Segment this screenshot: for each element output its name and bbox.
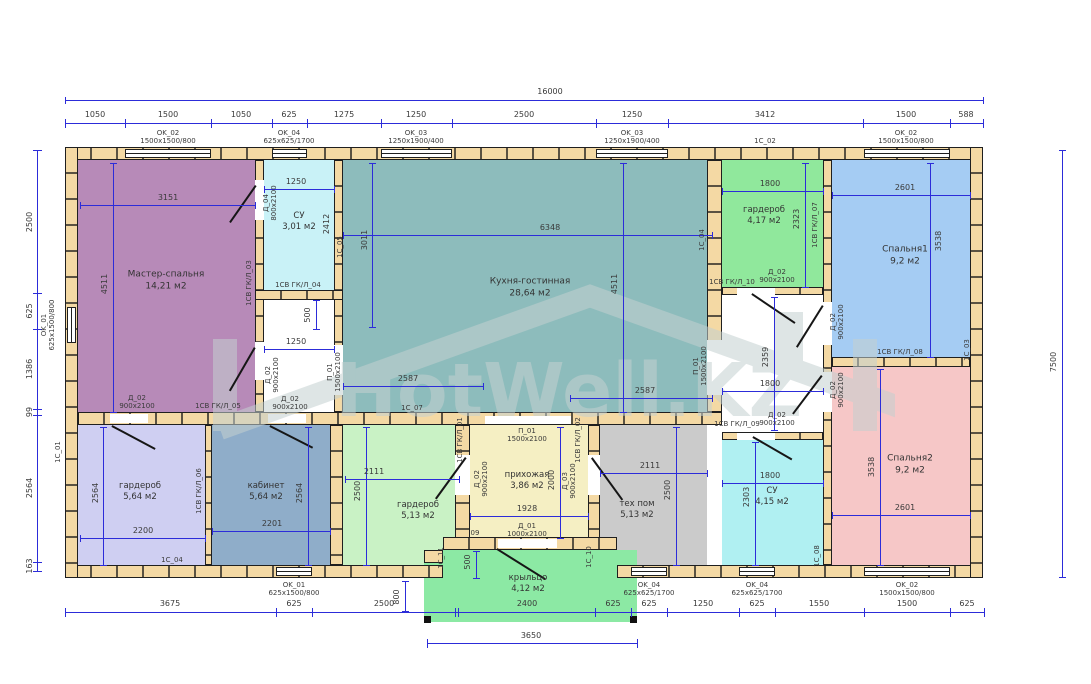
dimension-tick: [722, 480, 723, 487]
dimension-tick: [313, 300, 320, 301]
annotation-label: 1500: [896, 110, 916, 120]
dimension-tick: [595, 608, 596, 617]
dimension-tick: [823, 388, 824, 395]
dimension-chain: [65, 612, 984, 613]
dimension-tick: [863, 119, 864, 128]
dimension-tick: [927, 163, 934, 164]
dimension-tick: [100, 565, 107, 566]
annotation-label: 1500x2100: [700, 346, 708, 386]
annotation-label: 1С_03: [963, 339, 971, 361]
annotation-label: 1050: [85, 110, 105, 120]
dimension-tick: [402, 581, 409, 582]
dimension-tick: [313, 329, 320, 330]
annotation-label: 625: [25, 303, 35, 318]
dimension-line: [366, 427, 367, 565]
dimension-tick: [264, 346, 265, 353]
annotation-label: 1386: [25, 359, 35, 379]
annotation-label: 1СВ ГК/Л_09: [714, 420, 760, 428]
room-label: Кухня-гостинная 28,64 м2: [490, 276, 571, 299]
dimension-tick: [65, 97, 66, 104]
annotation-label: 625x625/1700: [731, 589, 782, 597]
dimension-line: [805, 163, 806, 287]
dimension-tick: [877, 369, 884, 370]
dimension-tick: [363, 565, 370, 566]
door-opening: [268, 414, 306, 423]
dimension-label: 1800: [760, 179, 780, 189]
dimension-tick: [369, 327, 376, 328]
dimension-tick: [950, 608, 951, 617]
annotation-label: 1С_02: [754, 137, 776, 145]
dimension-tick: [667, 608, 668, 617]
dimension-label: 3538: [867, 457, 877, 477]
room-label: прихожая 3,86 м2: [505, 470, 550, 492]
dimension-label: 2111: [364, 467, 384, 477]
room-label: гардероб 4,17 м2: [743, 205, 785, 227]
annotation-label: 1СВ ГК/Л_04: [275, 281, 321, 289]
dimension-tick: [1059, 150, 1066, 151]
annotation-label: 1500x2100: [507, 435, 547, 443]
dimension-label: 4511: [100, 274, 110, 294]
dimension-tick: [970, 512, 971, 519]
wall: [255, 290, 343, 300]
dimension-tick: [1059, 577, 1066, 578]
annotation-label: 1500x1500/800: [878, 137, 934, 145]
annotation-label: 2500: [374, 599, 394, 609]
dimension-label: 2200: [133, 526, 153, 536]
dimension-line: [80, 205, 255, 206]
annotation-label: 1СВ ГК/Л_07: [811, 202, 819, 248]
dimension-tick: [305, 427, 312, 428]
annotation-label: 3412: [755, 110, 775, 120]
dimension-tick: [276, 608, 277, 617]
dimension-tick: [255, 202, 256, 209]
dimension-label: 2500: [353, 481, 363, 501]
room-label: тех пом 5,13 м2: [619, 499, 654, 521]
dimension-label: 2500: [663, 480, 673, 500]
annotation-label: 1500x1500/800: [879, 589, 935, 597]
dimension-label: 3151: [158, 193, 178, 203]
room-label: Спальня2 9,2 м2: [887, 453, 933, 476]
annotation-label: 1С_10: [585, 546, 593, 568]
dimension-tick: [739, 608, 740, 617]
dimension-label: 2587: [398, 374, 418, 384]
dimension-tick: [33, 150, 42, 151]
dimension-line: [103, 427, 104, 565]
dimension-line: [308, 427, 309, 565]
dimension-tick: [673, 427, 680, 428]
window: [739, 567, 775, 576]
annotation-label: 1250: [693, 599, 713, 609]
dimension-label: 2564: [91, 483, 101, 503]
dimension-chain: [427, 643, 637, 644]
dimension-tick: [970, 192, 971, 199]
annotation-label: 2500: [514, 110, 534, 120]
dimension-tick: [264, 186, 265, 193]
dimension-tick: [557, 538, 564, 539]
annotation-label: 625: [959, 599, 974, 609]
dimension-tick: [470, 513, 471, 520]
dimension-tick: [33, 293, 42, 294]
door-opening: [707, 340, 722, 395]
annotation-label: 1С_01: [54, 441, 62, 463]
annotation-label: 1СВ ГК/Л_03: [245, 260, 253, 306]
dimension-tick: [983, 119, 984, 128]
annotation-label: 900x2100: [119, 402, 154, 410]
dimension-tick: [950, 119, 951, 128]
dimension-label: 2201: [262, 519, 282, 529]
dimension-label: 3538: [934, 231, 944, 251]
annotation-label: 1250x1900/400: [604, 137, 660, 145]
annotation-label: 625: [605, 599, 620, 609]
door-opening: [485, 416, 571, 424]
dimension-label: 1250: [286, 177, 306, 187]
dimension-tick: [864, 608, 865, 617]
dimension-tick: [823, 480, 824, 487]
annotation-label: 1С_08: [813, 545, 821, 567]
wall: [832, 357, 970, 367]
dimension-tick: [722, 388, 723, 395]
window: [631, 567, 667, 576]
dimension-tick: [620, 412, 627, 413]
dimension-tick: [307, 119, 308, 128]
wall: [205, 425, 212, 565]
dimension-tick: [452, 119, 453, 128]
dimension-tick: [637, 639, 638, 648]
dimension-tick: [983, 97, 984, 104]
dimension-tick: [673, 565, 680, 566]
window: [276, 567, 312, 576]
dimension-tick: [832, 192, 833, 199]
dimension-tick: [557, 427, 564, 428]
dimension-label: 3011: [360, 230, 370, 250]
wall: [970, 147, 983, 578]
dimension-tick: [707, 470, 708, 477]
dimension-tick: [473, 551, 480, 552]
dimension-tick: [305, 565, 312, 566]
dimension-label: 2564: [295, 483, 305, 503]
annotation-label: 1С_11: [437, 547, 445, 569]
dimension-tick: [334, 186, 335, 193]
dimension-tick: [343, 383, 344, 390]
wall: [65, 565, 443, 578]
annotation-label: 1250: [406, 110, 426, 120]
annotation-label: 1050: [231, 110, 251, 120]
porch-post: [424, 616, 431, 623]
annotation-label: 1550: [809, 599, 829, 609]
dimension-tick: [877, 565, 884, 566]
dimension-tick: [455, 608, 456, 617]
dimension-tick: [927, 357, 934, 358]
dimension-line: [343, 235, 712, 236]
dimension-label: 4511: [610, 274, 620, 294]
annotation-label: 900x2100: [569, 463, 577, 498]
wall: [78, 412, 722, 425]
dimension-tick: [427, 639, 428, 648]
annotation-label: 625x1500/800: [268, 589, 319, 597]
annotation-label: 900x2100: [272, 403, 307, 411]
dimension-line: [113, 163, 114, 412]
dimension-tick: [620, 163, 627, 164]
dimension-label: 500: [303, 307, 313, 322]
dimension-line: [405, 581, 406, 611]
dimension-tick: [596, 119, 597, 128]
door-opening: [737, 288, 775, 295]
dimension-tick: [125, 119, 126, 128]
annotation-label: 1СВ ГК/Л_05: [195, 402, 241, 410]
room-corridor-top: [264, 300, 334, 412]
window: [596, 149, 668, 158]
dimension-tick: [330, 528, 331, 535]
dimension-chain: [65, 123, 983, 124]
room-label: Спальня1 9,2 м2: [882, 244, 928, 267]
dimension-label: 2359: [761, 347, 771, 367]
annotation-label: 1С_07: [401, 404, 423, 412]
window: [67, 307, 76, 343]
annotation-label: 1С_05: [336, 236, 344, 258]
window: [125, 149, 211, 158]
annotation-label: 1250x1900/400: [388, 137, 444, 145]
annotation-label: 625x1500/800: [48, 299, 56, 350]
floor-plan: HotWell.KZ Мастер-спальня 14,21 м2СУ 3,0…: [0, 0, 1091, 684]
annotation-label: 625: [281, 110, 296, 120]
dimension-tick: [65, 119, 66, 128]
dimension-label: 500: [463, 554, 473, 569]
annotation-label: 900x2100: [759, 419, 794, 427]
dimension-tick: [272, 119, 273, 128]
dimension-line: [65, 100, 983, 101]
dimension-tick: [345, 476, 346, 483]
annotation-label: 1500x2100: [334, 352, 342, 392]
dimension-tick: [110, 163, 117, 164]
annotation-label: 1СВ ГК/Л_02: [574, 417, 582, 463]
wall: [823, 160, 832, 565]
annotation-label: 625: [749, 599, 764, 609]
annotation-label: 2400: [517, 599, 537, 609]
annotation-label: 09: [471, 529, 480, 537]
room-label: СУ 3,01 м2: [282, 211, 315, 233]
dimension-tick: [722, 188, 723, 195]
annotation-label: 99: [25, 407, 35, 417]
dimension-tick: [771, 297, 778, 298]
dimension-label: 2111: [640, 461, 660, 471]
window: [381, 149, 452, 158]
wall: [330, 425, 343, 565]
annotation-label: 1000x2100: [507, 530, 547, 538]
dimension-label: 1800: [760, 379, 780, 389]
annotation-label: 1500: [897, 599, 917, 609]
dimension-label: 2601: [895, 183, 915, 193]
annotation-label: 2500: [25, 212, 35, 232]
annotation-label: 625: [641, 599, 656, 609]
dimension-label: 1800: [760, 471, 780, 481]
annotation-label: 900x2100: [272, 357, 280, 392]
dimension-line: [722, 483, 823, 484]
dimension-line: [316, 300, 317, 329]
dimension-tick: [363, 427, 370, 428]
dimension-line: [623, 163, 624, 412]
dimension-tick: [712, 395, 713, 402]
dimension-label: 7500: [1049, 352, 1059, 372]
dimension-line: [880, 369, 881, 565]
room-label: крыльцо 4,12 м2: [509, 573, 548, 595]
dimension-tick: [312, 608, 313, 617]
door-opening: [255, 342, 264, 380]
window: [864, 567, 950, 576]
dimension-line: [722, 191, 823, 192]
annotation-label: 1СВ ГК/Л_08: [877, 348, 923, 356]
annotation-label: 1500: [158, 110, 178, 120]
dimension-tick: [212, 528, 213, 535]
annotation-label: 1СВ ГК/Л_06: [195, 468, 203, 514]
dimension-line: [930, 163, 931, 357]
annotation-label: 2564: [25, 478, 35, 498]
dimension-line: [476, 551, 477, 578]
dimension-tick: [473, 578, 480, 579]
dimension-label: 16000: [537, 87, 562, 97]
dimension-label: 2303: [742, 487, 752, 507]
dimension-tick: [984, 608, 985, 617]
window: [272, 149, 307, 158]
dimension-tick: [205, 535, 206, 542]
dimension-tick: [771, 430, 778, 431]
dimension-line: [212, 531, 330, 532]
dimension-line: [343, 386, 483, 387]
annotation-label: 1С_04: [161, 556, 183, 564]
dimension-tick: [668, 119, 669, 128]
annotation-label: 1500x1500/800: [140, 137, 196, 145]
dimension-line: [570, 398, 712, 399]
dimension-label: 2601: [895, 503, 915, 513]
dimension-tick: [752, 442, 759, 443]
dimension-tick: [402, 611, 409, 612]
dimension-line: [1062, 150, 1063, 577]
dimension-line: [470, 516, 588, 517]
annotation-label: 163: [25, 558, 35, 573]
dimension-tick: [588, 513, 589, 520]
dimension-tick: [65, 608, 66, 617]
annotation-label: 1275: [334, 110, 354, 120]
dimension-line: [600, 473, 707, 474]
dimension-line: [264, 349, 334, 350]
annotation-label: 1250: [622, 110, 642, 120]
dimension-tick: [80, 202, 81, 209]
dimension-label: 2000: [547, 470, 557, 490]
dimension-tick: [712, 232, 713, 239]
dimension-label: 2412: [322, 214, 332, 234]
annotation-label: 588: [958, 110, 973, 120]
dimension-label: 2323: [792, 209, 802, 229]
dimension-tick: [369, 163, 376, 164]
dimension-line: [372, 163, 373, 327]
dimension-tick: [570, 395, 571, 402]
dimension-label: 3650: [521, 631, 541, 641]
door-opening: [110, 414, 148, 423]
annotation-label: 900x2100: [837, 304, 845, 339]
dimension-tick: [823, 188, 824, 195]
wall: [65, 147, 78, 578]
annotation-label: 625x625/1700: [623, 589, 674, 597]
dimension-label: 1928: [517, 504, 537, 514]
dimension-tick: [802, 287, 809, 288]
dimension-tick: [381, 119, 382, 128]
annotation-label: 1СВ ГК/Л_01: [456, 417, 464, 463]
room-label: кабинет 5,64 м2: [248, 481, 285, 503]
room-label: СУ 4,15 м2: [755, 486, 788, 508]
dimension-tick: [600, 470, 601, 477]
door-opening: [498, 539, 557, 548]
annotation-label: 625x625/1700: [263, 137, 314, 145]
room-label: Мастер-спальня 14,21 м2: [128, 269, 205, 292]
porch-post: [630, 616, 637, 623]
annotation-label: 800x2100: [270, 185, 278, 220]
dimension-tick: [458, 608, 459, 617]
dimension-tick: [802, 163, 809, 164]
dimension-tick: [80, 535, 81, 542]
dimension-tick: [211, 119, 212, 128]
dimension-line: [722, 391, 823, 392]
annotation-label: 1СВ ГК/Л_10: [709, 278, 755, 286]
room-label: гардероб 5,64 м2: [119, 481, 161, 503]
dimension-tick: [775, 608, 776, 617]
annotation-label: 900x2100: [837, 372, 845, 407]
dimension-tick: [832, 512, 833, 519]
dimension-label: 6348: [540, 223, 560, 233]
annotation-label: 3675: [160, 599, 180, 609]
dimension-tick: [752, 565, 759, 566]
dimension-line: [80, 538, 205, 539]
annotation-label: 900x2100: [481, 461, 489, 496]
dimension-chain: [37, 150, 38, 571]
dimension-line: [676, 427, 677, 565]
dimension-tick: [631, 608, 632, 617]
dimension-line: [832, 515, 970, 516]
dimension-tick: [110, 412, 117, 413]
dimension-tick: [100, 427, 107, 428]
annotation-label: 900x2100: [759, 276, 794, 284]
dimension-label: 1250: [286, 337, 306, 347]
window: [864, 149, 950, 158]
room-label: гардероб 5,13 м2: [397, 500, 439, 522]
dimension-line: [832, 195, 970, 196]
annotation-label: 1С_04: [698, 229, 706, 251]
annotation-label: 625: [286, 599, 301, 609]
dimension-label: 2587: [635, 386, 655, 396]
dimension-tick: [483, 383, 484, 390]
dimension-tick: [459, 476, 460, 483]
